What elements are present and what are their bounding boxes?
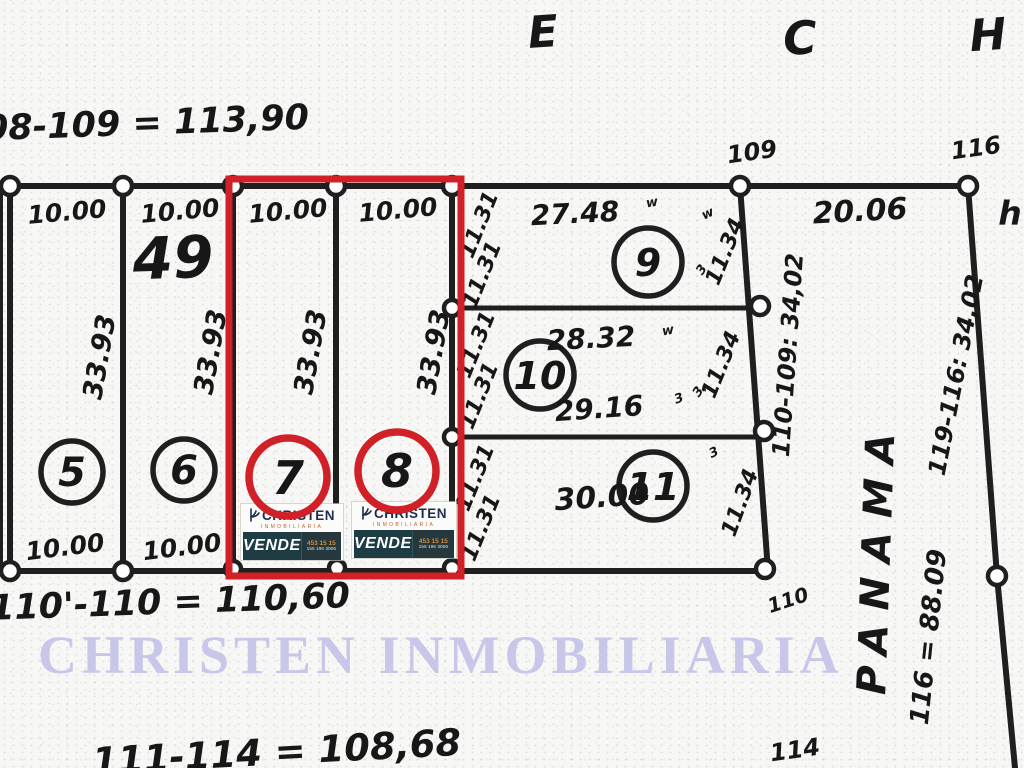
badge-brand-subtext: INMOBILIARIA xyxy=(354,522,454,529)
lot5-number: 5 xyxy=(58,453,86,493)
badge-phone-box: 453 15 15 155 196 3006 xyxy=(301,532,341,560)
point-label-114: 114 xyxy=(769,735,822,766)
lot7-number: 7 xyxy=(272,455,304,501)
street-letter-h: H xyxy=(968,13,1008,59)
east-diagonal-line-lower xyxy=(997,576,1015,768)
christen-logo-icon xyxy=(361,506,372,520)
badge-phone-main: 453 15 15 xyxy=(307,540,336,547)
lot6-front-measure: 10.00 xyxy=(140,195,221,227)
lot9-number: 9 xyxy=(635,244,661,282)
badge-phone-box: 453 15 15 155 196 3006 xyxy=(412,530,454,558)
right-parcel-corner-mark: h xyxy=(998,197,1022,230)
badge-brand-text: CHRISTEN xyxy=(262,508,335,523)
right-parcel-front-measure: 20.06 xyxy=(812,195,908,230)
badge-phone-alt: 155 196 3006 xyxy=(307,547,336,552)
vende-badge-lot7: CHRISTEN INMOBILIARIA VENDE 453 15 15 15… xyxy=(241,504,343,560)
lot8-number: 8 xyxy=(381,448,413,494)
badge-vende-label: VENDE xyxy=(354,530,412,558)
vende-badge-lot8: CHRISTEN INMOBILIARIA VENDE 453 15 15 15… xyxy=(352,502,456,558)
badge-phone-main: 453 15 15 xyxy=(419,538,448,545)
lot5-front-measure: 10.00 xyxy=(27,196,108,228)
lot7-front-measure: 10.00 xyxy=(248,195,329,227)
badge-phone-alt: 155 196 3006 xyxy=(419,545,448,550)
badge-vende-label: VENDE xyxy=(243,532,301,560)
lot8-front-measure: 10.00 xyxy=(358,194,439,226)
christen-logo-icon xyxy=(249,508,260,522)
point-label-109: 109 xyxy=(726,137,779,168)
badge-brand-row: CHRISTEN xyxy=(354,504,454,522)
lot10-front-mark: w xyxy=(661,324,675,339)
badge-brand-subtext: INMOBILIARIA xyxy=(243,524,341,531)
lot9-front-measure: 27.48 xyxy=(530,198,620,231)
badge-brand-text: CHRISTEN xyxy=(374,506,447,521)
street-name-panama: PANAMA xyxy=(852,418,902,695)
lot10-front-measure: 28.32 xyxy=(546,323,636,356)
badge-action-row: VENDE 453 15 15 155 196 3006 xyxy=(354,530,454,558)
lot10-number: 10 xyxy=(514,357,567,395)
east-diagonal-line xyxy=(968,186,997,576)
street-letter-c: C xyxy=(782,14,818,62)
lot9-front-mark: w xyxy=(645,196,659,211)
block-number: 49 xyxy=(132,228,215,289)
agency-watermark: CHRISTEN INMOBILIARIA xyxy=(38,624,844,686)
street-letter-e: E xyxy=(526,10,559,56)
lot10-back-measure: 29.16 xyxy=(554,392,644,426)
badge-action-row: VENDE 453 15 15 155 196 3006 xyxy=(243,532,341,560)
lot6-number: 6 xyxy=(170,451,198,491)
lot11-back-measure: 30.00 xyxy=(554,480,651,517)
badge-brand-row: CHRISTEN xyxy=(243,506,341,524)
point-label-116: 116 xyxy=(950,133,1003,164)
survey-map: E C H 08-109 = 113,90 49 10.00 33.93 5 1… xyxy=(0,0,1024,768)
